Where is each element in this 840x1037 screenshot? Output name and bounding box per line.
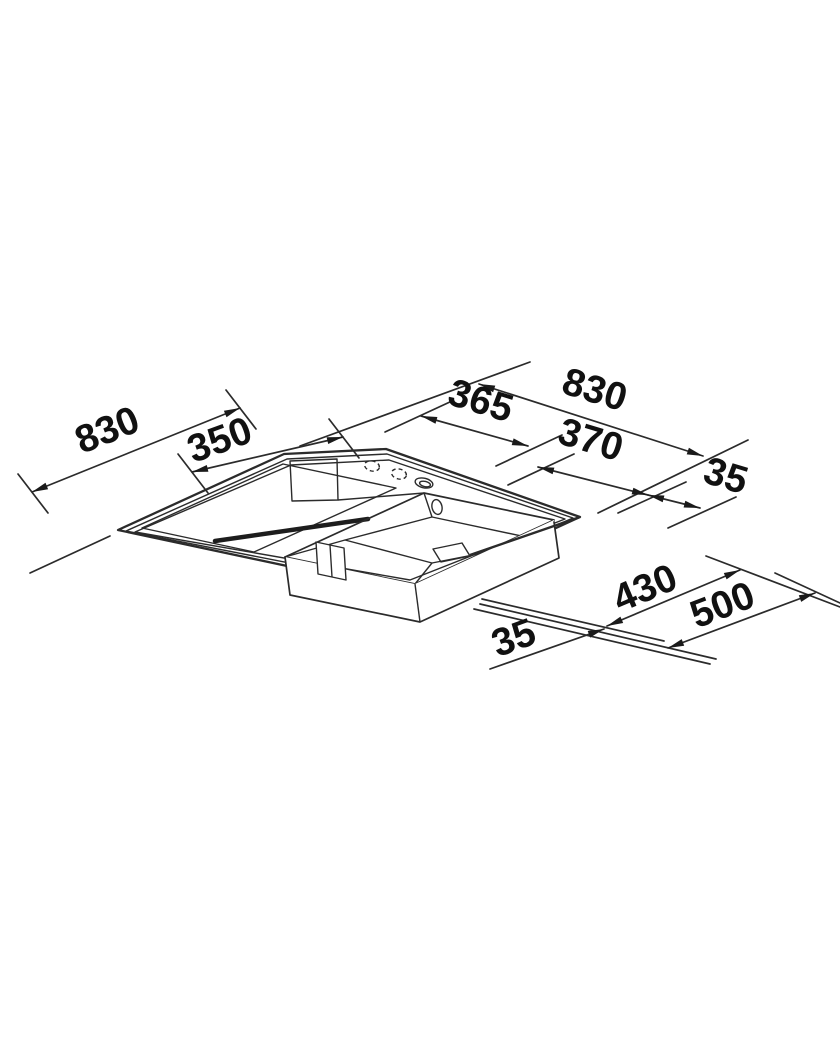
extension-line	[775, 573, 840, 603]
bowl-wall-edge-back-left	[424, 493, 432, 517]
arrowhead	[632, 488, 648, 495]
technical-drawing-page: 830 365 370 35	[0, 0, 840, 1037]
tap-hole-knockout-icon	[391, 467, 408, 480]
dimension-label: 830	[69, 398, 145, 462]
arrowhead	[421, 416, 437, 424]
drainboard-outline	[142, 464, 396, 552]
dimension-label: 365	[443, 371, 518, 431]
extension-line	[30, 536, 110, 573]
drain-step-box	[316, 542, 346, 580]
arrowhead	[32, 483, 48, 492]
extension-line	[18, 474, 48, 513]
arrowhead	[512, 438, 528, 446]
arrowhead	[684, 501, 700, 508]
dimension-bottom-margin-35: 35	[474, 599, 716, 669]
extension-line	[508, 454, 574, 485]
dimension-label: 350	[182, 409, 258, 472]
dimension-annotations: 830 365 370 35	[18, 360, 840, 669]
dimension-top-overall-830: 830	[300, 360, 748, 513]
overflow-hole-icon	[431, 499, 444, 516]
arrowhead	[327, 437, 343, 444]
dimension-label: 35	[486, 611, 541, 666]
dimension-top-segment-365: 365	[385, 371, 562, 466]
extension-line	[668, 497, 736, 528]
arrowhead	[687, 448, 703, 456]
dimension-label: 430	[607, 556, 684, 621]
dimension-label: 500	[684, 574, 760, 637]
tap-hole-knockout-icon	[364, 459, 381, 472]
dimension-label: 35	[699, 449, 753, 503]
arrowhead	[668, 639, 684, 648]
dimension-top-margin-35: 35	[648, 449, 753, 528]
sink-drawing	[118, 449, 580, 622]
tap-hole-icon	[414, 476, 434, 489]
dimension-bottom-overall-500: 500	[668, 573, 840, 648]
sink-dimension-diagram: 830 365 370 35	[0, 0, 840, 1037]
arrowhead	[607, 617, 623, 626]
extension-line	[385, 401, 452, 432]
dimension-line	[538, 467, 648, 495]
